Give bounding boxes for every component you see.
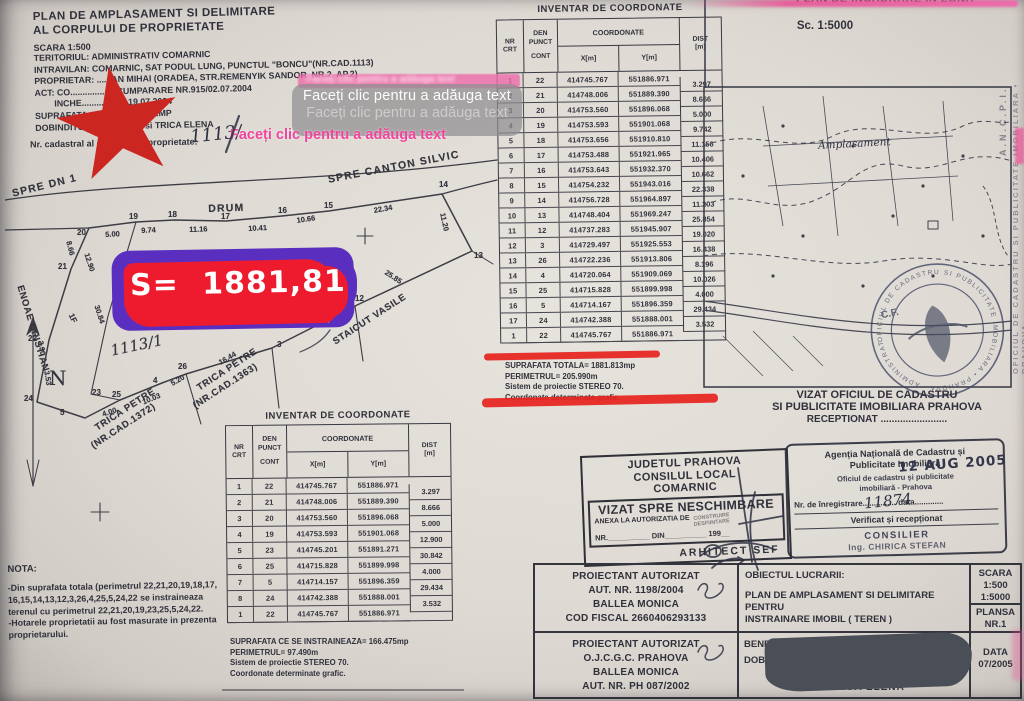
drawing-label: 11.16 (189, 224, 208, 234)
table-cell: 1 (501, 328, 527, 342)
col-coordonate: COORDONATE X[m] Y[m] (287, 424, 409, 477)
drawing-label: 26 (178, 362, 187, 371)
table-cell: 6 (499, 148, 525, 162)
red-underline-top (484, 350, 660, 360)
table-cell: 414748.404 (559, 207, 620, 222)
table-cell: 414737.283 (560, 222, 621, 237)
coord-table-main-title: INVENTAR DE COORDONATE (498, 1, 722, 15)
table-cell: 11 (500, 223, 526, 237)
table-cell: 414745.767 (287, 478, 348, 494)
beneficiar-box: BENEFIC DOB TRICA ELENA (739, 633, 971, 697)
table-cell: 551932.370 (620, 161, 681, 176)
head-crt: CRT (503, 46, 517, 55)
table-cell: 414754.232 (559, 177, 620, 192)
table-cell: 12 (526, 223, 560, 237)
dist-cell: 3.532 (411, 596, 453, 612)
stamp-cf-text: C.F. (880, 307, 900, 322)
table-cell: 23 (253, 543, 287, 558)
table-row: 824414742.388551888.001 (228, 589, 410, 607)
coord-table-main-body: 122414745.767551886.971221414748.0065518… (498, 71, 684, 344)
table-cell: 551888.001 (349, 589, 410, 605)
table-cell: 3 (526, 238, 560, 252)
coord-table-main-head: NR CRT DEN PUNCT CONT COORDONATE X[m] Y[… (497, 17, 722, 73)
scara-box: SCARA 1:500 1:5000 (971, 565, 1020, 605)
table-cell: 21 (524, 88, 558, 102)
col-nr-crt: NR CRT (497, 20, 524, 72)
placeholder-text-secondary: Faceți clic pentru a adăuga text (292, 105, 522, 121)
text-line: O.J.C.G.C. PRAHOVA (535, 652, 737, 666)
head-dist: DIST (422, 441, 438, 450)
side-text-office: OFICIUL DE CADASTRU SI PUBLICITATE IMOBI… (1011, 44, 1024, 374)
table-cell: 551945.907 (621, 221, 682, 236)
table-cell: 25 (526, 283, 560, 297)
table-cell: 414745.767 (561, 327, 622, 342)
nota-lines: -Din suprafata totala (perimetrul 22,21,… (8, 579, 234, 642)
drawing-label: 5.00 (105, 229, 120, 239)
table-cell: 414745.767 (288, 606, 349, 622)
table-row: 523414745.201551891.271 (227, 541, 409, 559)
table-cell: 5 (227, 543, 253, 558)
data-label: DATA (971, 647, 1020, 659)
dist-cell: 4.000 (410, 564, 452, 580)
dist-cell: 29.434 (411, 580, 453, 596)
table-cell: 551889.390 (619, 86, 680, 101)
table-cell: 414753.593 (287, 526, 348, 542)
head-den: DEN (262, 436, 276, 445)
table-cell: 551896.068 (348, 509, 409, 525)
table-cell: 4 (526, 268, 560, 282)
table-cell: 24 (254, 591, 288, 606)
obiect-label: OBIECTUL LUCRARII: (745, 570, 963, 581)
coord-table-second: NR CRT DEN PUNCT CONT COORDONATE X[m] Y[… (225, 423, 453, 623)
dist-cell: 12.900 (410, 532, 452, 548)
vizat-line3: RECEPTIONAT ........................ (752, 414, 1002, 425)
pink-placeholder-text[interactable]: Faceți clic pentru a adăuga text (230, 127, 446, 143)
text-line: SUPRAFATA TOTALA= 1881.813mp (505, 361, 715, 372)
table-cell: 551886.971 (618, 71, 679, 86)
head-punct: PUNCT (258, 444, 282, 453)
table-cell: 551896.359 (622, 296, 683, 311)
col-den-punct-cont: DEN PUNCT CONT (253, 426, 288, 478)
coord-table-second-head: NR CRT DEN PUNCT CONT COORDONATE X[m] Y[… (226, 424, 451, 479)
text-line: Sistem de proiectie STEREO 70. (230, 658, 460, 669)
table-cell: 14 (500, 268, 526, 282)
drawing-label: 20 (77, 228, 86, 237)
drawing-label: 17 (221, 212, 230, 221)
table-cell: 9 (499, 193, 525, 207)
council-box: JUDETUL PRAHOVA CONSILUL LOCAL COMARNIC … (580, 448, 792, 566)
col-den-punct-cont: DEN PUNCT CONT (523, 20, 558, 72)
table-cell: 21 (253, 495, 287, 510)
drawing-label: 10.41 (248, 223, 267, 233)
text-line: AUT. NR. 1198/2004 (535, 584, 737, 598)
table-cell: 8 (499, 178, 525, 192)
table-cell: 13 (525, 208, 559, 222)
table-cell: 10 (499, 208, 525, 222)
table-cell: 20 (524, 103, 558, 117)
table-cell: 551899.998 (348, 557, 409, 573)
text-line: BALLEA MONICA (535, 666, 737, 680)
drawing-label: 13 (474, 251, 483, 260)
table-cell: 414742.388 (288, 590, 349, 606)
dist-cell: 3.297 (410, 484, 452, 500)
text-line: proprietarului. (8, 626, 233, 642)
head-x: X[m] (558, 46, 619, 72)
table-cell: 17 (501, 313, 527, 327)
table-row: 122414745.767551886.971 (228, 605, 410, 623)
table-cell: 551891.271 (348, 541, 409, 557)
nota-block: NOTA: -Din suprafata totala (perimetrul … (7, 560, 233, 642)
head-cont: CONT (260, 459, 279, 468)
table-cell: 1 (227, 479, 253, 494)
table-row: 122414745.767551886.971 (227, 477, 409, 495)
drawing-label: 9.74 (141, 225, 156, 235)
drawing-label: 15 (324, 201, 333, 210)
col-nr-crt: NR CRT (226, 426, 253, 478)
table-cell: 551910.810 (619, 131, 680, 146)
second-table-summary: SUPRAFATA CE SE INSTRAINEAZA= 166.475mpP… (230, 637, 460, 679)
table-cell: 25 (253, 559, 287, 574)
drawing-label: 25 (112, 390, 121, 399)
table-cell: 15 (525, 178, 559, 192)
table-cell: 414714.167 (561, 297, 622, 312)
obiect-line2: INSTRAINARE IMOBIL ( TEREN ) (745, 614, 963, 626)
table-cell: 414753.643 (559, 162, 620, 177)
dobinditor-label: DOB (744, 655, 765, 666)
table-cell: 22 (524, 73, 558, 87)
table-cell: 414745.201 (287, 542, 348, 558)
drawing-label: 14 (439, 180, 448, 189)
table-cell: 19 (524, 118, 558, 132)
table-cell: 414714.157 (288, 574, 349, 590)
table-cell: 551943.016 (620, 176, 681, 191)
table-cell: 16 (501, 298, 527, 312)
head-dist-unit: [m] (424, 450, 435, 459)
map-scale: Sc. 1:5000 (740, 20, 910, 32)
scara-value1: 1:500 (971, 580, 1020, 592)
vizat-block: VIZAT OFICIUL DE CADASTRU SI PUBLICITATE… (752, 389, 1002, 425)
table-cell: 551901.068 (348, 525, 409, 541)
table-cell: 18 (524, 133, 558, 147)
drawing-label: 21 (58, 262, 67, 271)
table-row: 419414753.593551901.068 (227, 525, 409, 543)
table-cell: 17 (525, 148, 559, 162)
table-cell: 551964.897 (620, 191, 681, 206)
table-row: 320414753.560551896.068 (227, 509, 409, 527)
col-dist: DIST [m] (409, 424, 451, 476)
vizat-line1: VIZAT OFICIUL DE CADASTRU (752, 389, 1002, 401)
head-x: X[m] (287, 452, 348, 478)
text-line: Coordonate determinate grafic. (230, 669, 460, 680)
table-cell: 3 (227, 511, 253, 526)
table-cell: 414729.497 (560, 237, 621, 252)
table-cell: 414753.488 (559, 147, 620, 162)
table-cell: 20 (253, 511, 287, 526)
table-cell: 414715.828 (287, 558, 348, 574)
table-cell: 13 (500, 253, 526, 267)
table-row: 625414715.828551899.998 (227, 557, 409, 575)
head-nr: NR (234, 443, 244, 452)
head-nr: NR (505, 38, 515, 47)
plansa-label: PLANSA (971, 607, 1020, 619)
table-cell: 22 (254, 607, 288, 622)
drawing-label: 18 (168, 210, 177, 219)
table-cell: 5 (254, 575, 288, 590)
table-row: 75414714.157551896.359 (228, 573, 410, 591)
data-value: 07/2005 (971, 659, 1020, 671)
map-title: PLAN DE INCADRARE IN ZONA (755, 0, 1015, 5)
table-cell: 551925.553 (621, 236, 682, 251)
table-cell: 551899.998 (621, 281, 682, 296)
obiect-box: OBIECTUL LUCRARII: PLAN DE AMPLASAMENT S… (739, 565, 971, 633)
text-line: PROIECTANT AUTORIZAT (535, 570, 737, 584)
table-cell: 4 (227, 527, 253, 542)
redaction-blob (764, 631, 973, 692)
table-cell: 551889.390 (348, 493, 409, 509)
table-cell: 414722.236 (560, 252, 621, 267)
table-cell: 26 (526, 253, 560, 267)
drawing-label: 12 (355, 294, 364, 303)
head-coordonate: COORDONATE (287, 424, 408, 452)
head-den: DEN (533, 30, 547, 39)
table-cell: 5 (527, 298, 561, 312)
table-cell: 24 (527, 313, 561, 327)
data-box: DATA 07/2005 (971, 633, 1020, 697)
col-coordonate: COORDONATE X[m] Y[m] (558, 18, 680, 72)
table-cell: 7 (499, 163, 525, 177)
table-cell: 551886.971 (348, 477, 409, 493)
table-cell: 414753.593 (558, 117, 619, 132)
table-row: 122414745.767551886.971 (501, 326, 683, 344)
stamp-emblem (920, 303, 956, 365)
table-cell: 414753.656 (558, 132, 619, 147)
nota-title: NOTA: (7, 560, 232, 575)
table-cell: 12 (500, 238, 526, 252)
table-cell: 551909.069 (621, 266, 682, 281)
drawing-label: 4 (153, 376, 157, 385)
col-dist: DIST [m] (679, 17, 721, 70)
dist-cell: 5.000 (410, 516, 452, 532)
table-cell: 414753.560 (558, 102, 619, 117)
table-cell: 414742.388 (561, 312, 622, 327)
text-line: Sistem de proiectie STEREO 70. (505, 382, 715, 393)
table-cell: 414748.006 (558, 87, 619, 102)
head-coordonate: COORDONATE (558, 18, 679, 47)
dist-cell: 30.842 (410, 548, 452, 564)
title-block: PROIECTANT AUTORIZATAUT. NR. 1198/2004BA… (533, 563, 1022, 699)
head-cont: CONT (531, 53, 550, 62)
table-cell: 16 (525, 163, 559, 177)
scara-label: SCARA (971, 568, 1020, 580)
drawing-label: 23 (92, 388, 101, 397)
plansa-value: NR.1 (971, 619, 1020, 631)
table-cell: 2 (227, 495, 253, 510)
table-cell: 14 (525, 193, 559, 207)
drawing-label: 19 (129, 212, 138, 221)
table-cell: 414715.828 (560, 282, 621, 297)
obiect-line1: PLAN DE AMPLASAMENT SI DELIMITARE PENTRU (745, 590, 963, 614)
map-title-divider (704, 0, 706, 88)
text-line: AUT. NR. PH 087/2002 (535, 680, 737, 694)
coord-table-second-title: INVENTAR DE COORDONATE (226, 409, 450, 422)
proiectant-box-1: PROIECTANT AUTORIZATAUT. NR. 1198/2004BA… (535, 565, 739, 633)
text-line: PERIMETRUL= 97.490m (230, 648, 460, 659)
scara-value2: 1:5000 (971, 592, 1020, 604)
side-text-ancpi: A.N.C.P.I. (998, 26, 1008, 156)
council-inner-box: VIZAT SPRE NESCHIMBARE ANEXA LA AUTORIZA… (588, 493, 786, 547)
head-crt: CRT (232, 452, 246, 461)
table-cell: 414745.767 (557, 72, 618, 87)
table-cell: 22 (253, 479, 287, 494)
table-cell: 551969.247 (620, 206, 681, 221)
vizat-line2: SI PUBLICITATE IMOBILIARA PRAHOVA (752, 401, 1002, 413)
coord-table-second-body: 122414745.767551886.971221414748.0065518… (227, 477, 410, 623)
text-line: SUPRAFATA CE SE INSTRAINEAZA= 166.475mp (230, 637, 460, 648)
coord-table-main: NR CRT DEN PUNCT CONT COORDONATE X[m] Y[… (496, 16, 727, 343)
table-cell: 551913.806 (621, 251, 682, 266)
scanned-document-page: PLAN DE AMPLASAMENT SI DELIMITARE AL COR… (0, 0, 1024, 701)
anexa-options: CONSTRUIRE DESFIINTARE (693, 513, 730, 526)
table-cell: 551896.068 (619, 101, 680, 116)
table-cell: 551901.068 (619, 116, 680, 131)
table-cell: 551886.971 (622, 326, 683, 341)
drawing-label: N (49, 366, 67, 390)
table-cell: 551886.971 (349, 605, 410, 621)
text-line: PROIECTANT AUTORIZAT (535, 638, 737, 652)
head-y: Y[m] (348, 451, 408, 477)
dist-cell: 8.666 (410, 500, 452, 516)
placeholder-text-primary: Faceți clic pentru a adăuga text (292, 88, 522, 104)
bottom-divider-line (222, 689, 464, 691)
drawing-label: 24 (24, 394, 33, 403)
plansa-box: PLANSA NR.1 (971, 605, 1020, 633)
table-cell: 22 (527, 328, 561, 342)
head-y: Y[m] (619, 45, 679, 71)
table-cell: 414748.006 (287, 494, 348, 510)
table-cell: 19 (253, 527, 287, 542)
table-cell: 551921.965 (620, 146, 681, 161)
table-cell: 414756.728 (559, 192, 620, 207)
text-line: PERIMETRUL= 205.990m (505, 372, 715, 383)
drawing-label: 3 (277, 340, 281, 349)
table-row: 221414748.006551889.390 (227, 493, 409, 511)
table-cell: 551888.001 (622, 311, 683, 326)
table-cell: 551896.359 (349, 573, 410, 589)
proiectant-box-2: PROIECTANT AUTORIZATO.J.C.G.C. PRAHOVABA… (535, 633, 739, 697)
head-punct: PUNCT (529, 39, 553, 48)
table-cell: 414720.064 (560, 267, 621, 282)
text-line: BALLEA MONICA (535, 598, 737, 612)
table-cell: 15 (500, 283, 526, 297)
text-line: COD FISCAL 2660406293133 (535, 612, 737, 626)
area-value-text: S= 1881,81 (130, 264, 347, 304)
verified-line: Verificat și recepționat (794, 508, 998, 529)
drawing-label: 16 (278, 206, 287, 215)
coord-table-second-distcol: 3.2978.6665.00012.90030.8424.00029.4343.… (409, 484, 453, 612)
drawing-label: 5 (60, 408, 64, 417)
table-cell: 414753.560 (287, 510, 348, 526)
